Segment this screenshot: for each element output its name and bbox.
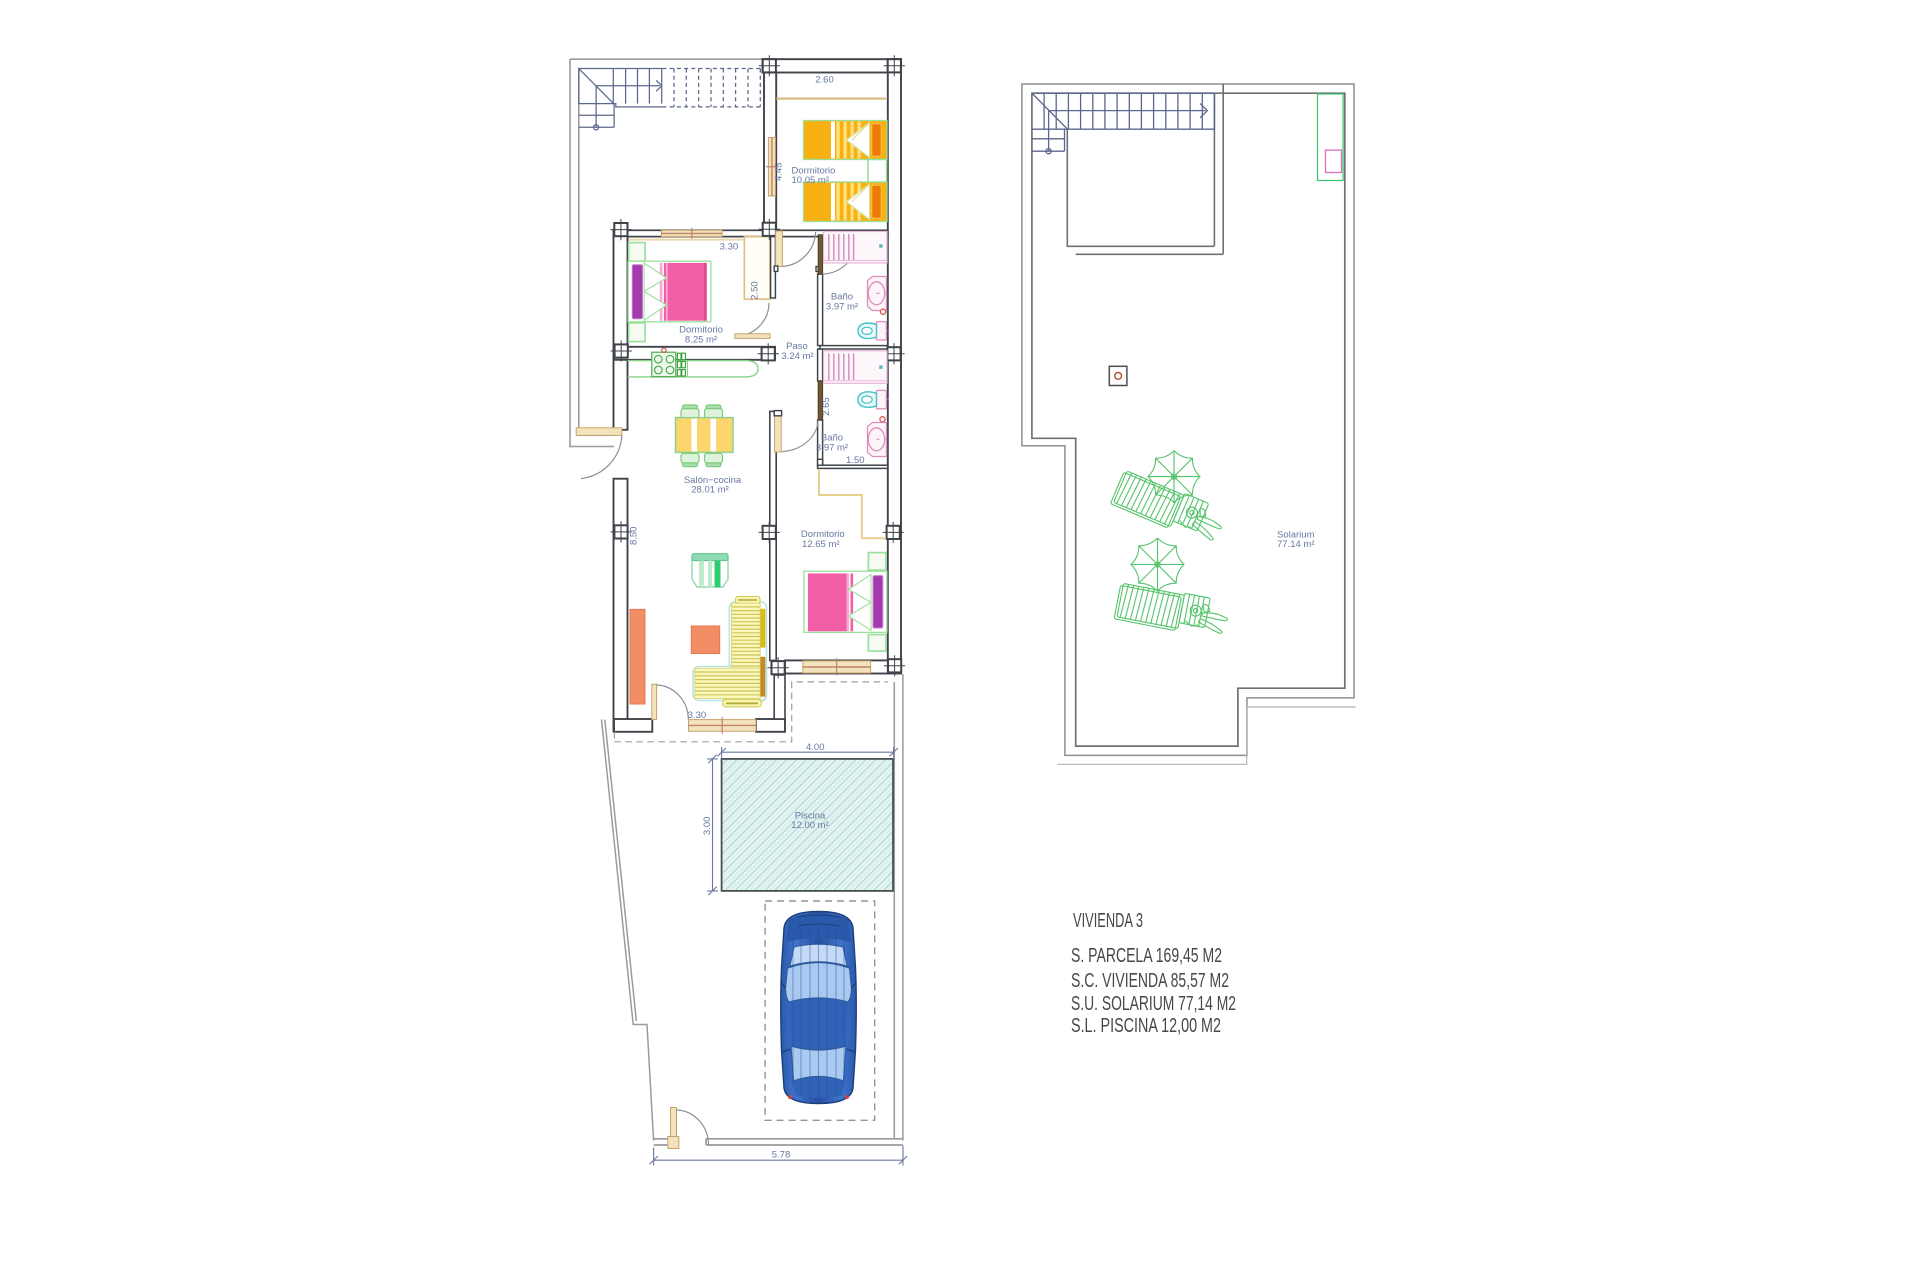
svg-text:S. PARCELA 169,45 M2: S. PARCELA 169,45 M2 bbox=[1071, 945, 1222, 967]
svg-text:77.14 m²: 77.14 m² bbox=[1277, 539, 1315, 550]
svg-text:VIVIENDA 3: VIVIENDA 3 bbox=[1073, 910, 1143, 932]
svg-text:2.60: 2.60 bbox=[815, 75, 834, 86]
svg-text:3.97 m²: 3.97 m² bbox=[816, 442, 848, 453]
svg-text:12.65 m²: 12.65 m² bbox=[802, 539, 840, 550]
svg-text:3.97 m²: 3.97 m² bbox=[826, 301, 858, 312]
svg-text:4.00: 4.00 bbox=[806, 742, 825, 753]
svg-text:3.24 m²: 3.24 m² bbox=[781, 351, 813, 362]
svg-text:3.30: 3.30 bbox=[720, 241, 739, 252]
svg-text:8.50: 8.50 bbox=[629, 527, 640, 546]
svg-text:S.U. SOLARIUM 77,14 M2: S.U. SOLARIUM 77,14 M2 bbox=[1071, 993, 1236, 1015]
svg-text:2.65: 2.65 bbox=[821, 397, 832, 416]
svg-text:4.45: 4.45 bbox=[774, 163, 785, 182]
svg-text:3.30: 3.30 bbox=[688, 710, 707, 721]
svg-text:8.25 m²: 8.25 m² bbox=[685, 334, 717, 345]
svg-text:12.00 m²: 12.00 m² bbox=[791, 820, 829, 831]
svg-text:28.01 m²: 28.01 m² bbox=[691, 485, 729, 496]
svg-text:S.C. VIVIENDA 85,57 M2: S.C. VIVIENDA 85,57 M2 bbox=[1071, 970, 1229, 992]
svg-text:3.00: 3.00 bbox=[702, 817, 713, 836]
svg-text:2.50: 2.50 bbox=[749, 281, 760, 300]
svg-text:1.50: 1.50 bbox=[846, 455, 865, 466]
svg-text:S.L. PISCINA 12,00 M2: S.L. PISCINA 12,00 M2 bbox=[1071, 1015, 1221, 1037]
svg-text:5.78: 5.78 bbox=[772, 1150, 791, 1161]
svg-text:10.05 m²: 10.05 m² bbox=[792, 175, 830, 186]
